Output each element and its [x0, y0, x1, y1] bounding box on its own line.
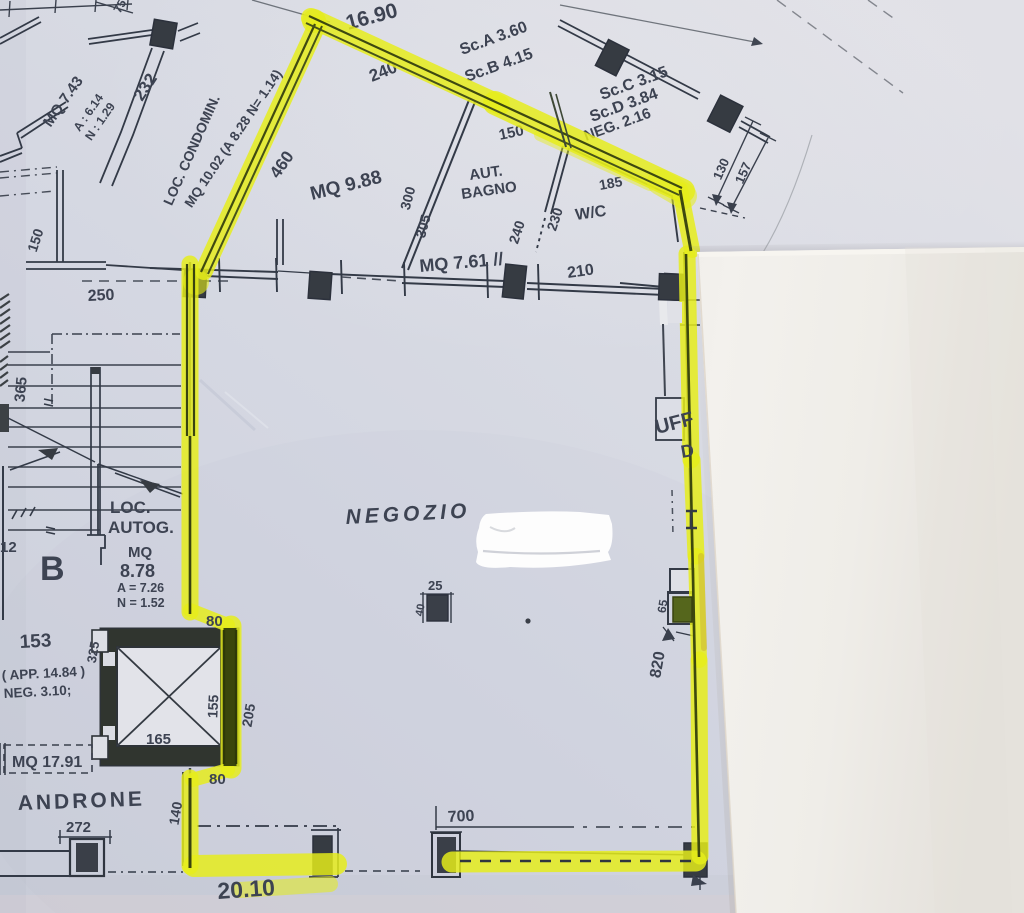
svg-text:B: B: [40, 550, 65, 588]
svg-text:AUTOG.: AUTOG.: [108, 518, 174, 537]
svg-text:365: 365: [12, 376, 31, 402]
svg-text:25: 25: [428, 578, 442, 593]
svg-text:65: 65: [655, 598, 671, 614]
svg-text:12: 12: [0, 539, 17, 556]
svg-text:153: 153: [19, 630, 52, 653]
svg-text:40: 40: [414, 603, 428, 617]
svg-text:8.78: 8.78: [120, 561, 155, 581]
svg-text:N = 1.52: N = 1.52: [117, 596, 165, 610]
svg-text:700: 700: [447, 808, 475, 826]
svg-text:MQ 17.91: MQ 17.91: [12, 754, 82, 771]
svg-text:250: 250: [87, 287, 115, 305]
svg-text:20.10: 20.10: [217, 874, 276, 904]
svg-text:LOC.: LOC.: [110, 498, 151, 517]
svg-text:80: 80: [206, 613, 223, 630]
svg-text:80: 80: [209, 771, 226, 788]
svg-text:ANDRONE: ANDRONE: [17, 788, 145, 815]
svg-text:165: 165: [146, 731, 171, 748]
svg-text:155: 155: [204, 694, 221, 718]
svg-text:A = 7.26: A = 7.26: [117, 581, 164, 595]
svg-text:MQ: MQ: [128, 544, 152, 561]
svg-text:272: 272: [66, 819, 91, 836]
